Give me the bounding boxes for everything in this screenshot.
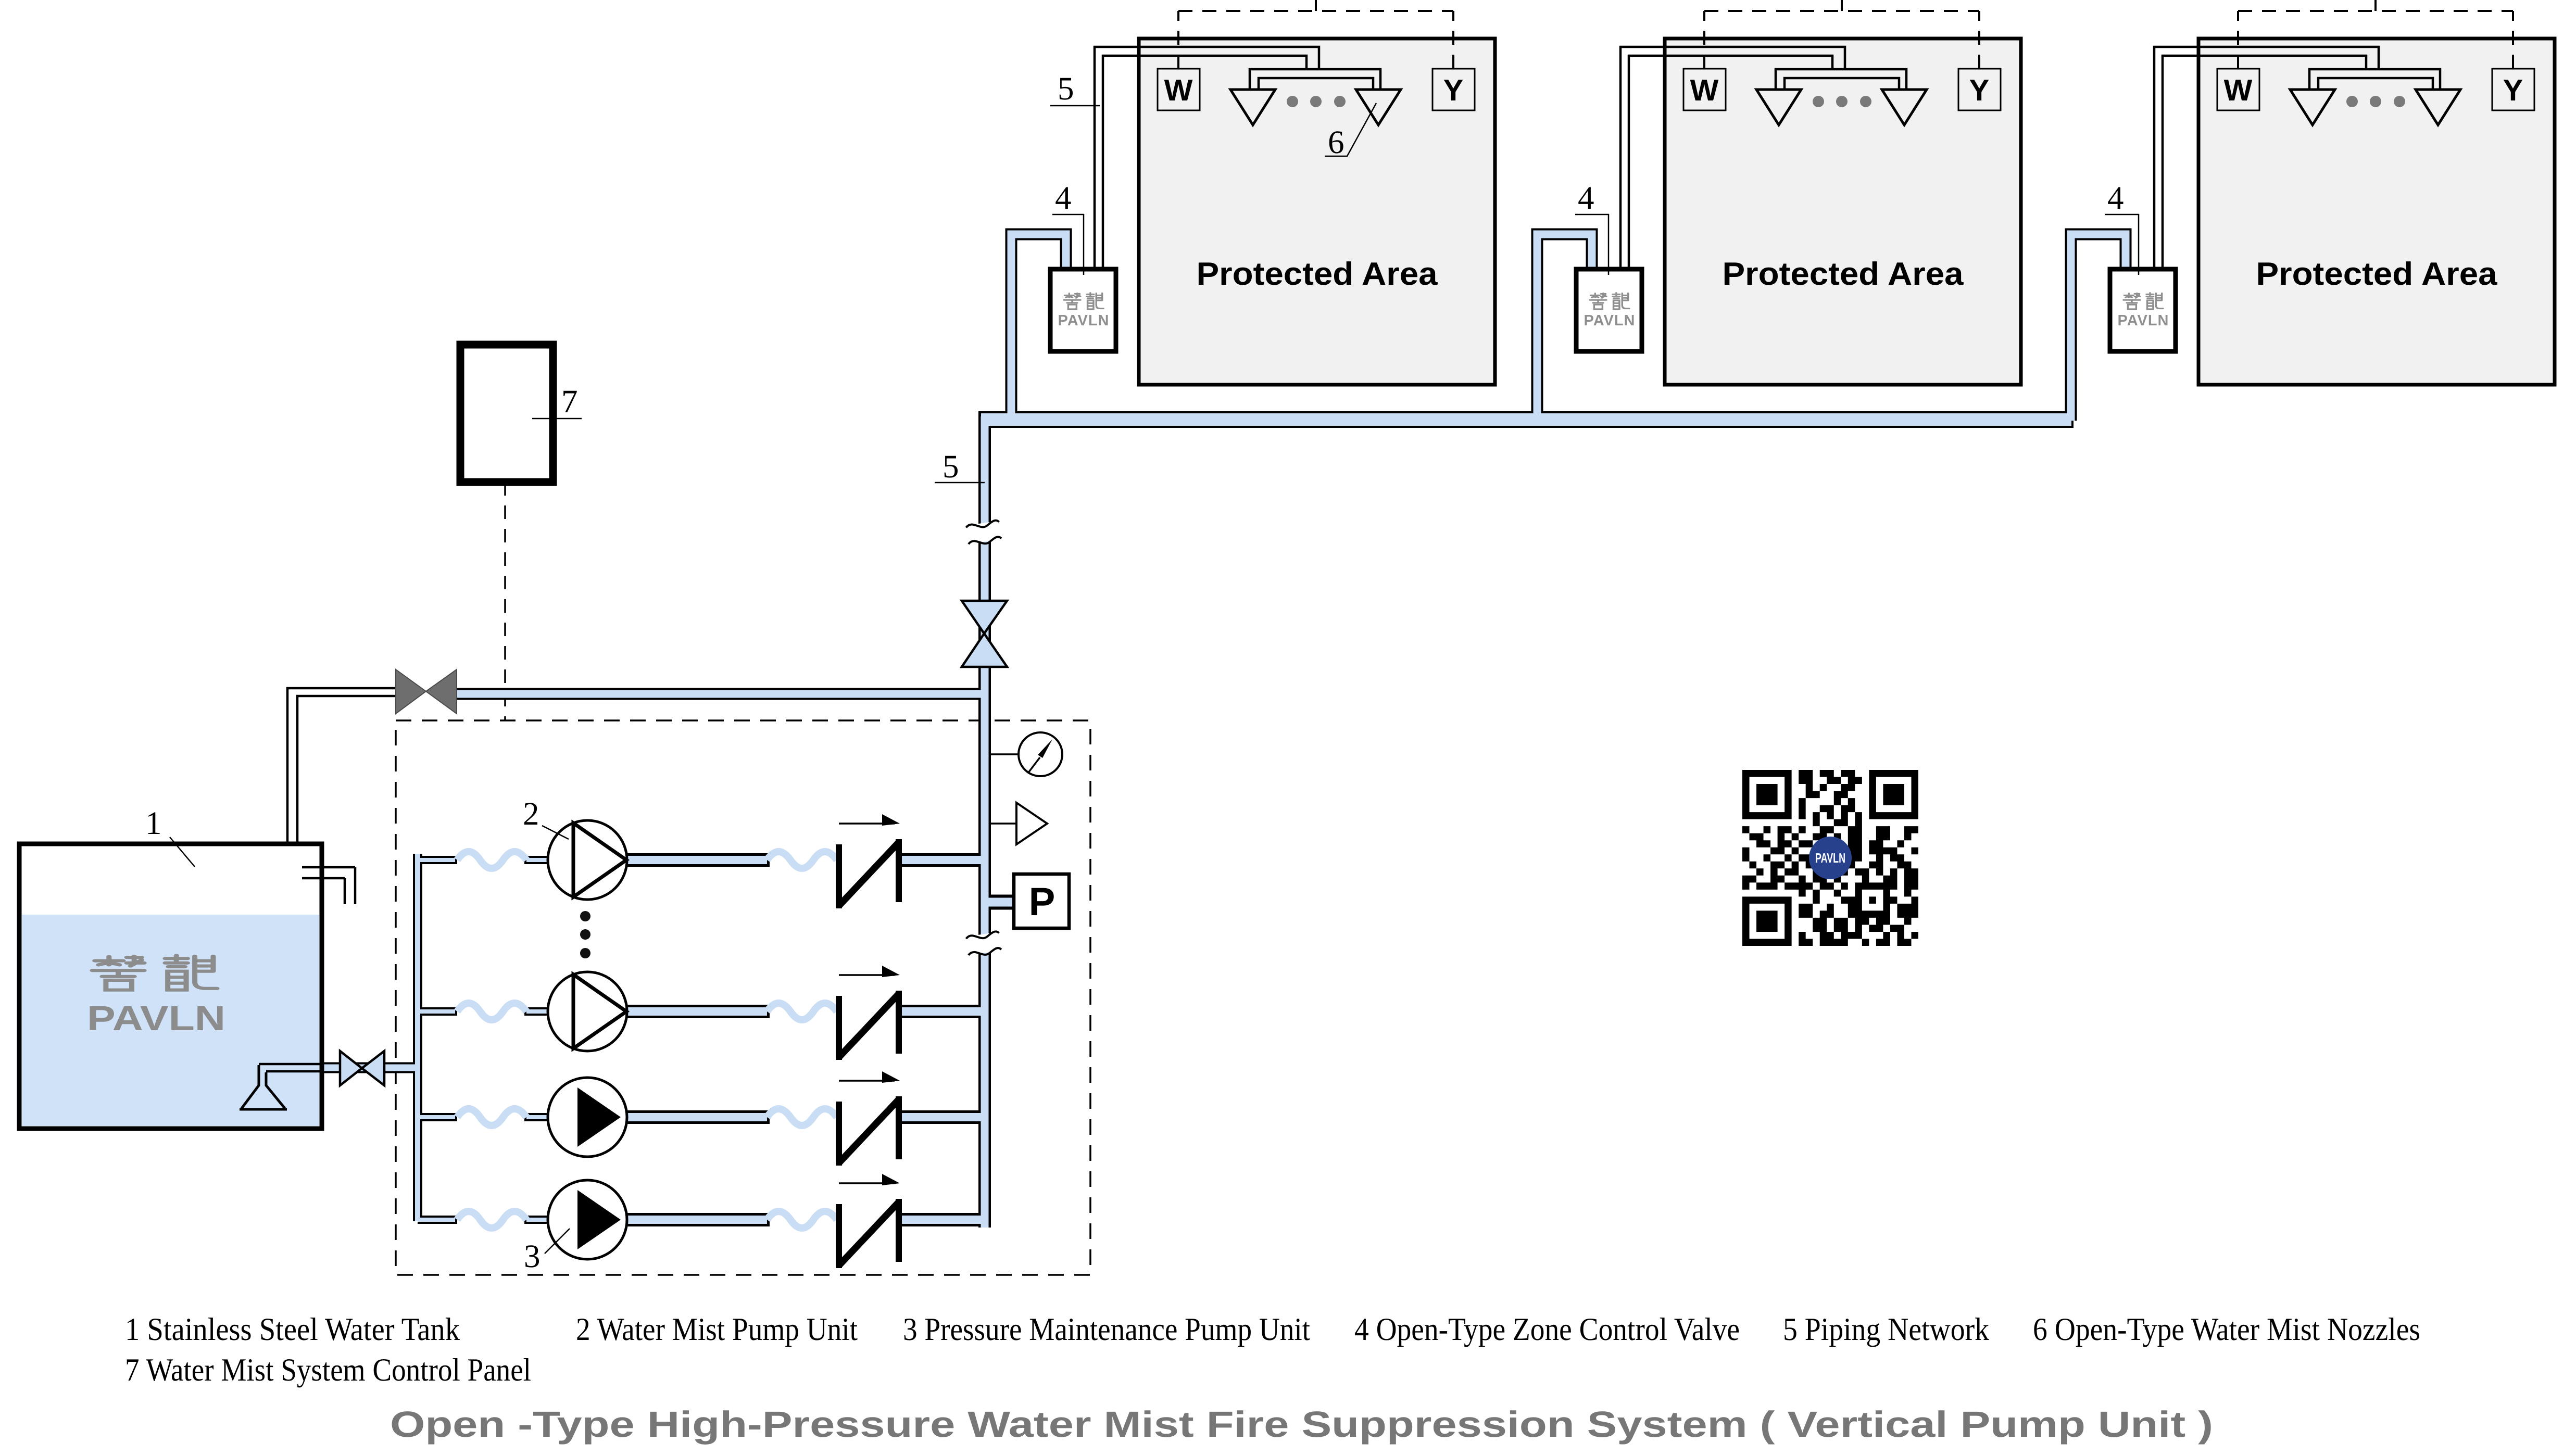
svg-text:1: 1 — [145, 805, 162, 841]
svg-text:3 Pressure Maintenance Pump Un: 3 Pressure Maintenance Pump Unit — [903, 1312, 1310, 1347]
svg-text:6: 6 — [1328, 124, 1344, 160]
svg-text:Y: Y — [1443, 73, 1464, 107]
svg-text:5 Piping Network: 5 Piping Network — [1783, 1312, 1989, 1347]
svg-text:W: W — [1690, 73, 1719, 107]
svg-text:W: W — [1164, 73, 1193, 107]
svg-text:Protected Area: Protected Area — [1723, 256, 1964, 292]
svg-text:7: 7 — [561, 383, 578, 420]
svg-text:W: W — [2224, 73, 2253, 107]
svg-text:PAVLN: PAVLN — [1058, 312, 1110, 329]
svg-text:PAVLN: PAVLN — [1584, 312, 1636, 329]
svg-text:PAVLN: PAVLN — [87, 999, 225, 1038]
svg-text:Y: Y — [1969, 73, 1990, 107]
svg-text:Protected Area: Protected Area — [2256, 256, 2498, 292]
svg-text:Protected Area: Protected Area — [1197, 256, 1438, 292]
svg-text:5: 5 — [943, 448, 959, 485]
svg-text:P: P — [1029, 880, 1055, 924]
svg-text:1 Stainless Steel Water Tank: 1 Stainless Steel Water Tank — [125, 1312, 460, 1347]
svg-text:4: 4 — [1055, 180, 1072, 216]
svg-text:Y: Y — [2503, 73, 2523, 107]
svg-text:Open -Type High-Pressure Water: Open -Type High-Pressure Water Mist Fire… — [390, 1404, 2213, 1445]
svg-text:PAVLN: PAVLN — [2118, 312, 2169, 329]
svg-text:4 Open-Type Zone Control Valve: 4 Open-Type Zone Control Valve — [1354, 1312, 1740, 1347]
svg-text:4: 4 — [1578, 180, 1594, 216]
svg-text:2 Water Mist Pump Unit: 2 Water Mist Pump Unit — [576, 1312, 858, 1347]
svg-text:3: 3 — [524, 1238, 541, 1274]
svg-text:6 Open-Type Water Mist Nozzles: 6 Open-Type Water Mist Nozzles — [2033, 1312, 2420, 1347]
svg-text:2: 2 — [523, 795, 539, 832]
svg-text:5: 5 — [1058, 70, 1074, 107]
svg-text:4: 4 — [2107, 180, 2124, 216]
svg-text:7 Water Mist System Control Pa: 7 Water Mist System Control Panel — [125, 1352, 531, 1388]
svg-text:PAVLN: PAVLN — [1815, 850, 1845, 866]
